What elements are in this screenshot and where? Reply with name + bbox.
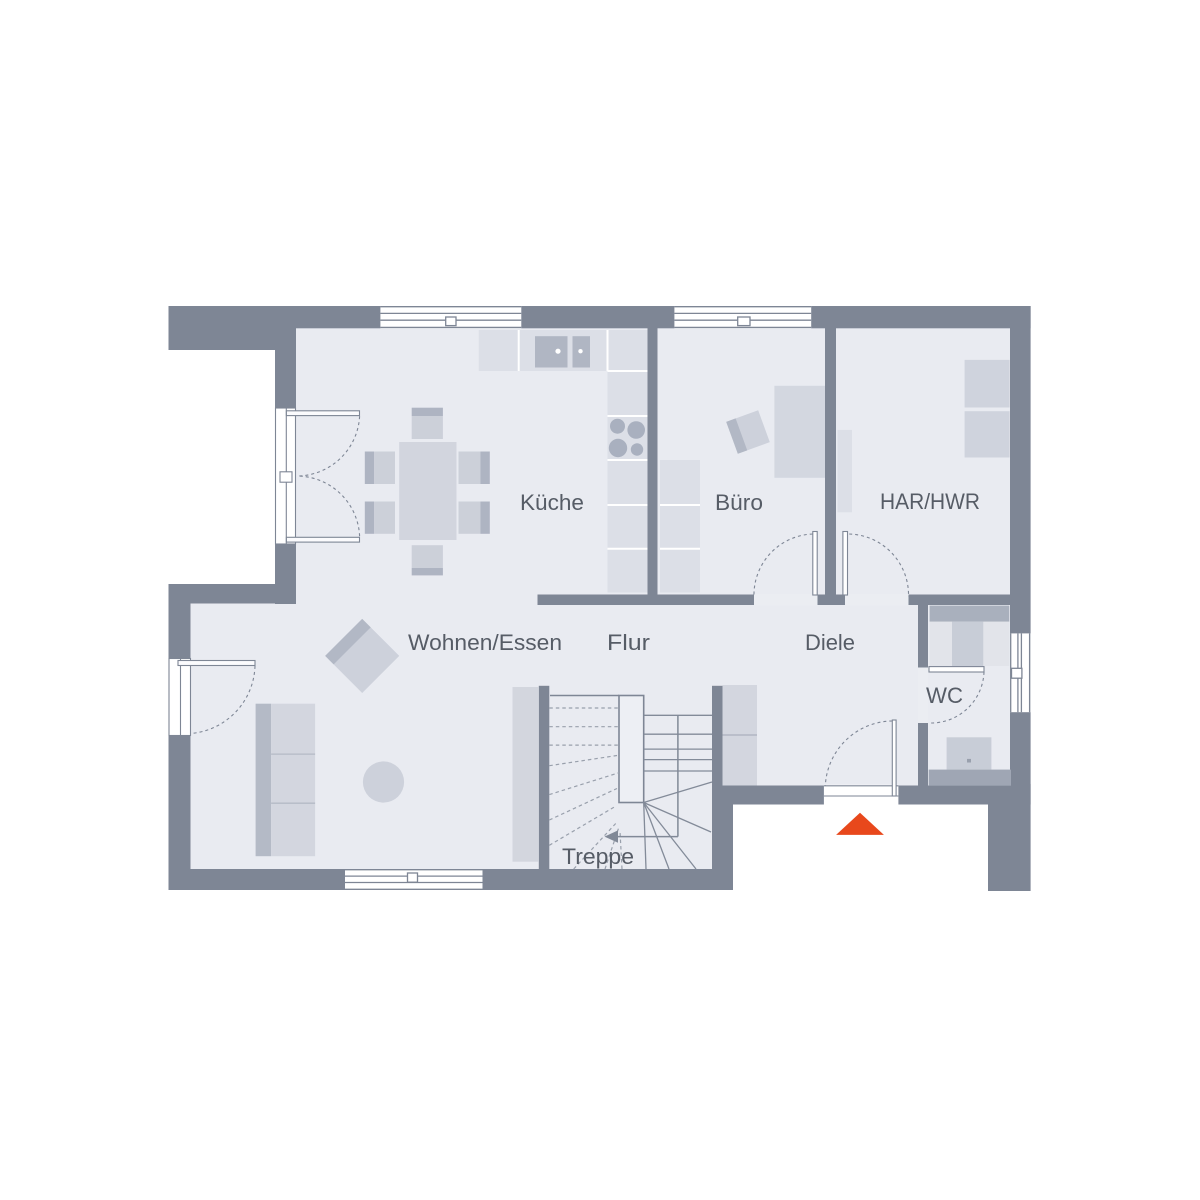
svg-text:Büro: Büro bbox=[715, 490, 763, 515]
svg-text:Küche: Küche bbox=[520, 490, 584, 515]
svg-text:Diele: Diele bbox=[805, 630, 855, 655]
svg-text:Wohnen/Essen: Wohnen/Essen bbox=[408, 630, 562, 655]
svg-text:Flur: Flur bbox=[607, 630, 651, 655]
svg-text:WC: WC bbox=[926, 683, 963, 708]
svg-text:HAR/HWR: HAR/HWR bbox=[880, 489, 980, 514]
svg-text:Treppe: Treppe bbox=[562, 844, 634, 869]
